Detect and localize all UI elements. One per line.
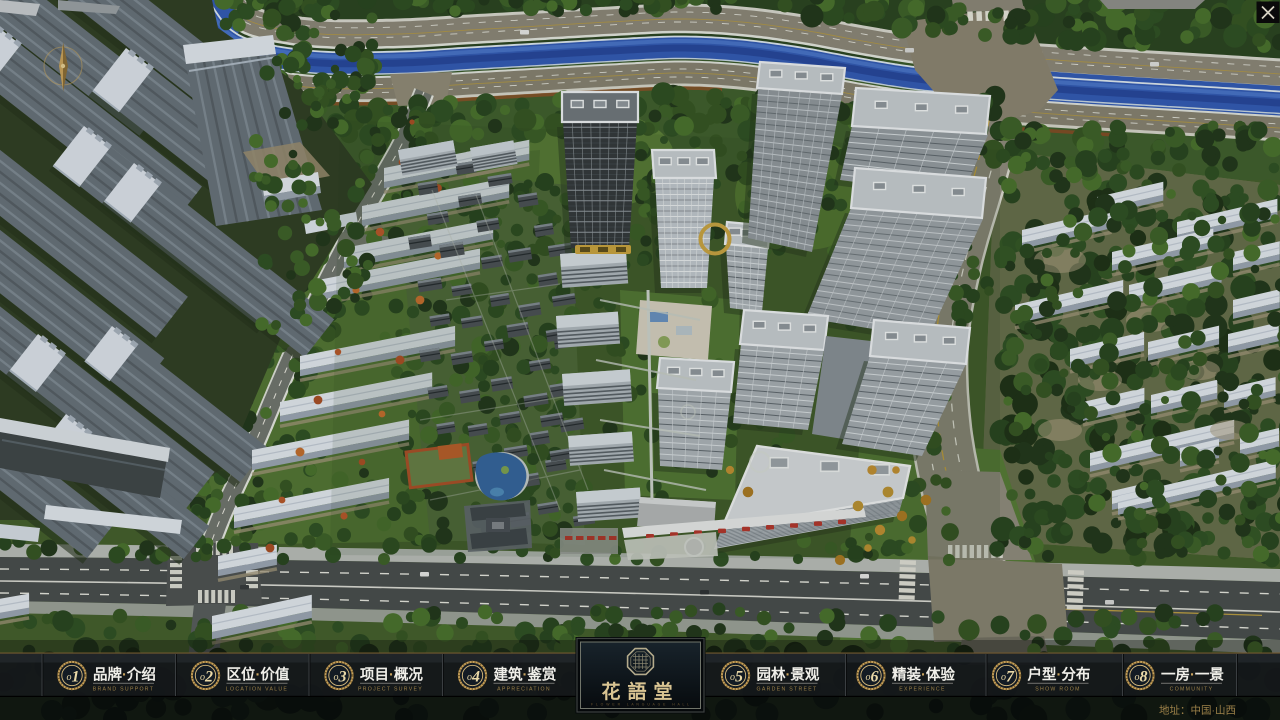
svg-text:LOCATION VALUE: LOCATION VALUE <box>226 687 288 693</box>
svg-text:户型·分布: 户型·分布 <box>1028 666 1091 684</box>
svg-text:1: 1 <box>72 669 80 686</box>
svg-text:APPRECIATION: APPRECIATION <box>497 687 551 693</box>
svg-text:园林·景观: 园林·景观 <box>757 666 820 684</box>
svg-text:项目·概况: 项目·概况 <box>360 666 423 684</box>
svg-text:GARDEN STREET: GARDEN STREET <box>757 687 818 693</box>
svg-text:BRAND SUPPORT: BRAND SUPPORT <box>93 687 154 693</box>
svg-text:COMMUNITY: COMMUNITY <box>1170 687 1214 693</box>
svg-text:7: 7 <box>1006 669 1015 686</box>
svg-text:8: 8 <box>1140 669 1148 686</box>
svg-text:SHOW ROOM: SHOW ROOM <box>1035 687 1080 693</box>
svg-text:6: 6 <box>871 669 879 686</box>
svg-text:区位·价值: 区位·价值 <box>227 666 290 684</box>
svg-text:花語堂: 花語堂 <box>601 680 679 703</box>
svg-text:PROJECT SURVEY: PROJECT SURVEY <box>358 687 423 693</box>
svg-text:3: 3 <box>338 669 347 686</box>
svg-text:建筑·鉴赏: 建筑·鉴赏 <box>494 666 557 684</box>
svg-text:F L O W E R L A N G U A G E: F L O W E R L A N G U A G E H A L L <box>591 703 690 707</box>
svg-text:地址：中国·山西: 地址：中国·山西 <box>1159 704 1236 717</box>
svg-text:品牌·介绍: 品牌·介绍 <box>93 666 156 684</box>
svg-text:精装·体验: 精装·体验 <box>892 666 955 684</box>
svg-text:4: 4 <box>471 669 480 686</box>
svg-text:2: 2 <box>204 669 213 686</box>
svg-text:5: 5 <box>735 669 743 686</box>
svg-text:一房·一景: 一房·一景 <box>1161 666 1224 684</box>
svg-text:EXPERIENCE: EXPERIENCE <box>899 687 945 693</box>
